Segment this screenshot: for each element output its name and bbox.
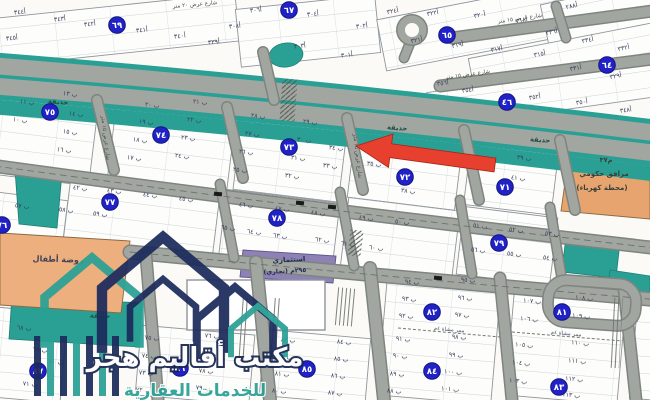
block-number: ٨٢ <box>427 308 438 318</box>
block-number: ٨٤ <box>427 367 438 377</box>
block-number-badge: ٧١ <box>497 179 514 196</box>
block-number-badge: ٧٨ <box>269 210 286 227</box>
block-number-badge: ٦٩ <box>109 17 126 34</box>
plot-label: ب ٩٥ <box>461 276 476 284</box>
block-number: ٨٣ <box>554 383 565 393</box>
crosswalk <box>280 79 298 122</box>
plot-label: ب ٩٢ <box>399 312 414 320</box>
watermark-office-tagline: للخدمات العقارية <box>124 381 266 400</box>
block-number-badge: ٧٣ <box>281 139 298 156</box>
plot-label: ب ٧٥ <box>145 334 160 342</box>
plot-label: ب ٨٨ <box>387 387 402 395</box>
garden-label: حديقة <box>530 135 551 144</box>
car-mark <box>296 201 304 206</box>
block-number: ٤٦ <box>502 98 513 108</box>
block-number: ٧٧ <box>105 198 116 208</box>
plot-label: ب ٩٠ <box>393 352 408 360</box>
block-number-badge: ٦٤ <box>599 57 616 74</box>
block-number: ٧٣ <box>284 143 295 153</box>
plot-label: ب ٩٤ <box>405 278 420 286</box>
block-number-badge: ٦٧ <box>281 2 298 19</box>
gov-zone-number: م٣٧ <box>600 156 613 164</box>
block-number: ٦٤ <box>602 61 613 71</box>
watermark-office-name: مكتب أقاليم هجر <box>85 340 304 373</box>
block-number-badge: ٧٧ <box>102 194 119 211</box>
plot-label: ب ٨٤ <box>337 338 352 346</box>
block-number-badge: ٧٢ <box>397 169 414 186</box>
block-number-badge: ٤٦ <box>499 94 516 111</box>
plot-label: ب ٩١ <box>396 335 411 343</box>
block-number: ٧٦ <box>0 221 7 231</box>
plot-label: ب ٨٥ <box>334 355 349 363</box>
block-number: ٧٥ <box>45 108 56 118</box>
block-number: ٦٧ <box>284 6 295 16</box>
block-number-badge: ٨٢ <box>424 304 441 321</box>
plot-label: ب ٨٩ <box>390 370 405 378</box>
garden-label: حديقة <box>387 123 408 132</box>
plot-label: ب ٨٧ <box>328 389 343 397</box>
parking-strip <box>334 287 357 327</box>
block-number-badge: ٧٥ <box>42 104 59 121</box>
plot-label: ب ٩٧ <box>455 311 470 319</box>
plot-label: ب ٩٩ <box>449 351 464 359</box>
block-number: ٦٥ <box>442 31 453 41</box>
plot-label: ب ٧٦ <box>205 332 220 340</box>
car-mark <box>214 192 222 197</box>
plot-label: ب ٨٦ <box>331 372 346 380</box>
block-number-badge: ٧٩ <box>491 235 508 252</box>
plot-map: روضة أطفال م٣٧ مرافق حكومي (محطة كهرباء)… <box>0 0 650 400</box>
plot-label: ب ٩٨ <box>452 333 467 341</box>
block-number-badge: ٧٤ <box>153 127 170 144</box>
block-number-badge: ٨١ <box>554 304 571 321</box>
plot-label: ب ٩٦ <box>458 294 473 302</box>
block-number-badge: ٨٤ <box>424 363 441 380</box>
block-number: ٨١ <box>557 308 568 318</box>
block-number: ٧٨ <box>272 214 283 224</box>
commercial-zone-label: استثماري <box>272 255 305 265</box>
gov-zone-sublabel: (محطة كهرباء) <box>576 184 627 192</box>
plot-label: ب ٨٠ <box>272 387 287 395</box>
plot-label: ب ٦٨ <box>17 324 32 332</box>
gov-zone-label: مرافق حكومي <box>579 170 628 178</box>
kindergarten-label: روضة أطفال <box>32 253 84 265</box>
block-number: ٧١ <box>500 183 511 193</box>
block-number: ٧٩ <box>494 239 505 249</box>
block-number-badge: ٨٣ <box>551 379 568 396</box>
block-number-badge: ٦٥ <box>439 27 456 44</box>
plot-label: ب ٩٣ <box>402 295 417 303</box>
block-number: ٦٩ <box>112 21 123 31</box>
car-mark <box>328 205 336 210</box>
block-number: ٧٤ <box>156 131 167 141</box>
car-mark <box>434 276 442 281</box>
block-number: ٧٢ <box>400 173 411 183</box>
